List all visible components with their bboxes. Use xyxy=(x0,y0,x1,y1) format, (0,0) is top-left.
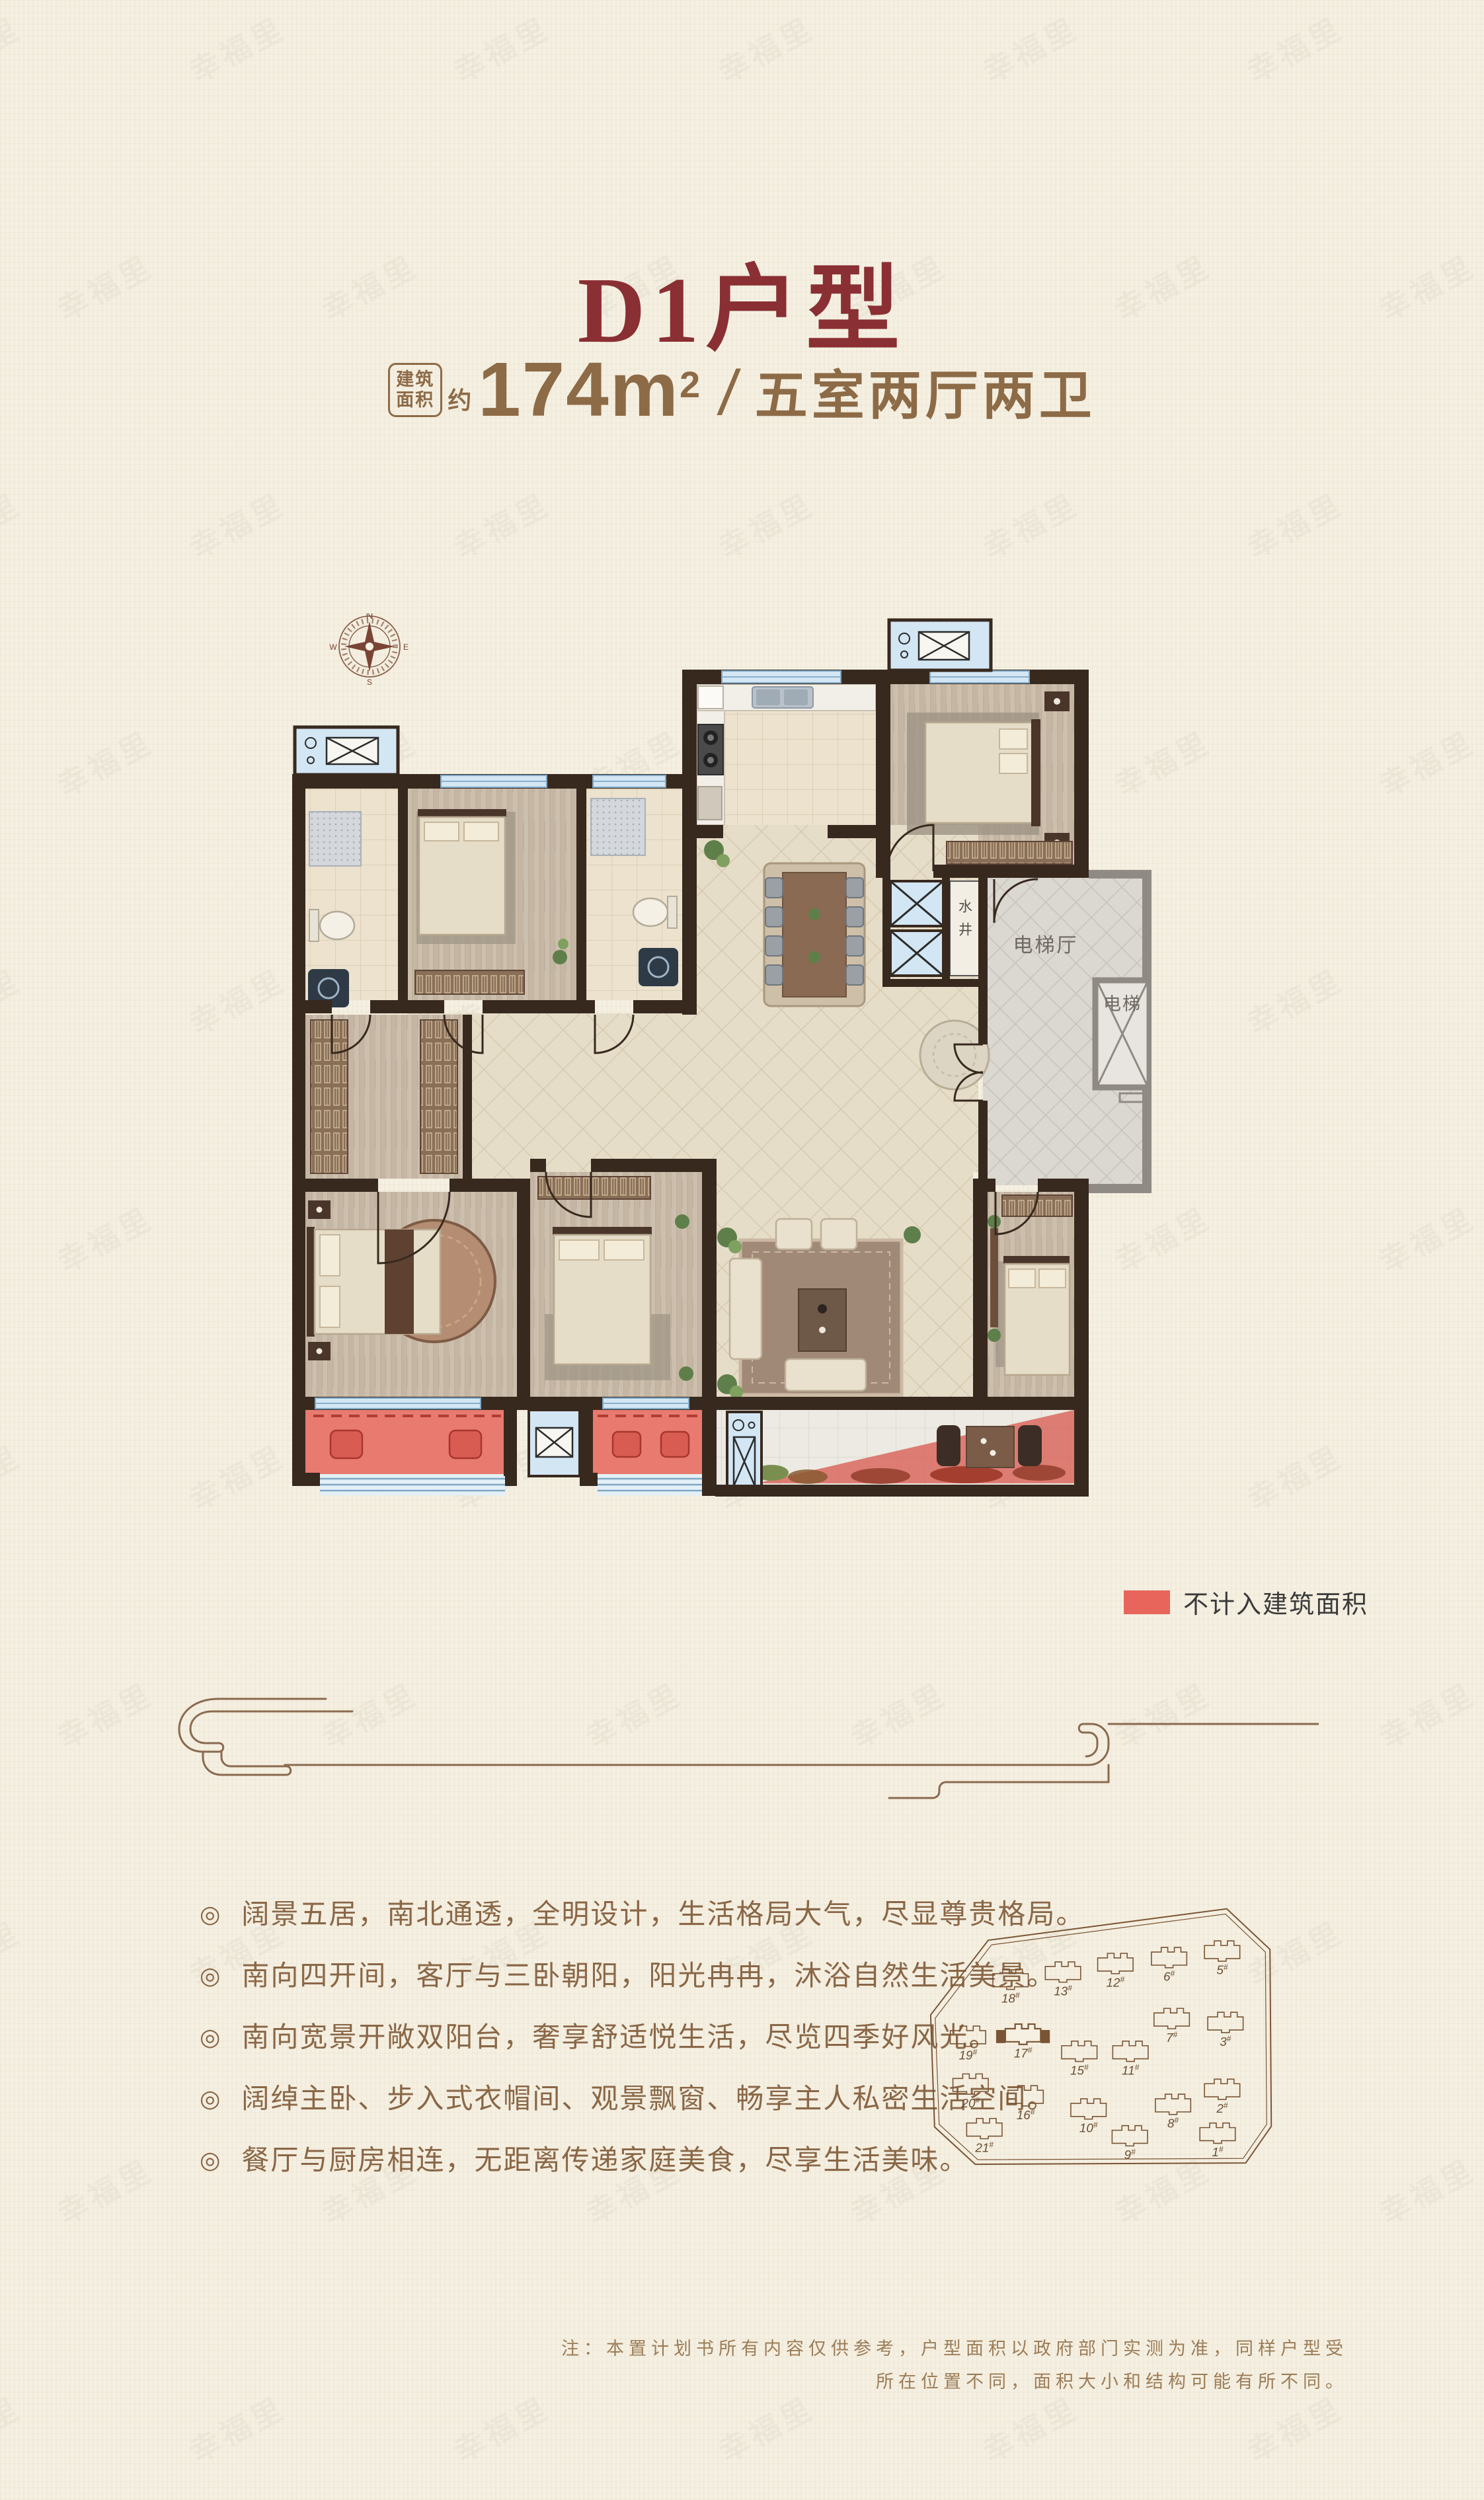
toilet-icon xyxy=(633,896,677,928)
watermark-text: 幸福里 xyxy=(181,481,293,568)
site-building-9: 9# xyxy=(1112,2126,1148,2162)
note-line-1: 注：本置计划书所有内容仅供参考，户型面积以政府部门实测为准，同样户型受 xyxy=(561,2332,1348,2365)
watermark-text: 幸福里 xyxy=(181,2384,293,2472)
watermark-text: 幸福里 xyxy=(710,481,822,568)
floor-plan: N E S W 电梯厅 电梯 xyxy=(286,613,1152,1506)
disclaimer-note: 注：本置计划书所有内容仅供参考，户型面积以政府部门实测为准，同样户型受 所在位置… xyxy=(561,2332,1348,2398)
site-building-label: 17# xyxy=(1014,2046,1033,2060)
watermark-text: 幸福里 xyxy=(1371,719,1483,806)
site-building-8: 8# xyxy=(1155,2094,1191,2130)
watermark-text: 幸福里 xyxy=(1239,481,1350,568)
site-building-3: 3# xyxy=(1208,2012,1243,2049)
toilet-icon xyxy=(309,910,354,941)
north-window-box-left xyxy=(295,727,398,775)
svg-text:电梯厅: 电梯厅 xyxy=(1013,935,1079,957)
watermark-text: 幸福里 xyxy=(181,1432,293,1520)
site-building-label: 13# xyxy=(1054,1984,1072,1998)
site-building-label: 8# xyxy=(1167,2116,1179,2130)
vanity-icon xyxy=(639,948,678,986)
area-sup: 2 xyxy=(680,364,700,405)
area-box-line2: 面积 xyxy=(396,390,434,410)
area-value: 174m2 xyxy=(478,357,700,422)
site-building-19: 19# xyxy=(951,2026,986,2062)
site-building-10: 10# xyxy=(1071,2099,1107,2135)
south-balcony xyxy=(717,1410,1074,1497)
site-building-6: 6# xyxy=(1152,1947,1187,1984)
site-building-label: 20# xyxy=(961,2095,980,2110)
site-building-label: 12# xyxy=(1107,1975,1125,1990)
site-building-18: 18# xyxy=(993,1969,1029,2006)
site-building-label: 5# xyxy=(1216,1963,1228,1977)
master-balcony xyxy=(305,1410,505,1495)
site-building-20: 20# xyxy=(953,2074,989,2110)
north-window-box-kitchen xyxy=(889,620,991,670)
layout-description: 五室两厅两卫 xyxy=(755,371,1096,421)
balcony-railing xyxy=(598,1474,705,1495)
watermark-text: 幸福里 xyxy=(1239,1432,1350,1520)
site-building-label: 11# xyxy=(1122,2062,1140,2077)
site-building-label: 18# xyxy=(1001,1990,1020,2005)
watermark-text: 幸福里 xyxy=(974,481,1086,568)
area-box: 建筑 面积 xyxy=(388,363,442,417)
site-building-21: 21# xyxy=(966,2119,1002,2155)
site-building-11: 11# xyxy=(1113,2041,1148,2078)
watermark-text: 幸福里 xyxy=(1239,5,1350,92)
approx-label: 约 xyxy=(448,381,471,416)
site-building-12: 12# xyxy=(1098,1953,1134,1990)
bullet-icon: ◎ xyxy=(200,2085,221,2113)
site-building-label: 15# xyxy=(1070,2062,1089,2077)
site-building-label: 21# xyxy=(974,2140,994,2154)
site-plan: 18#13#12#6#5#19#17#7#3#15#11#20#16#10#8#… xyxy=(920,1883,1287,2173)
compass-icon: N E S W xyxy=(329,613,409,687)
site-building-label: 7# xyxy=(1166,2030,1177,2045)
bullet-icon: ◎ xyxy=(200,2023,221,2051)
watermark-text: 幸福里 xyxy=(181,5,293,92)
site-building-13: 13# xyxy=(1045,1962,1081,1998)
watermark-text: 幸福里 xyxy=(446,2384,557,2472)
bedroom3-balcony xyxy=(593,1410,705,1495)
site-building-label: 19# xyxy=(959,2048,978,2062)
watermark-text: 幸福里 xyxy=(0,1908,28,1996)
site-building-label: 10# xyxy=(1079,2121,1098,2135)
balcony-railing xyxy=(320,1474,505,1495)
site-building-label: 2# xyxy=(1216,2101,1228,2115)
site-building-16: 16# xyxy=(1008,2086,1044,2122)
site-building-label: 3# xyxy=(1220,2034,1231,2049)
watermark-text: 幸福里 xyxy=(446,5,557,92)
watermark-text: 幸福里 xyxy=(0,1432,28,1520)
watermark-text: 幸福里 xyxy=(1371,1194,1483,1282)
watermark-text: 幸福里 xyxy=(49,2146,161,2234)
watermark-text: 幸福里 xyxy=(710,5,822,92)
watermark-text: 幸福里 xyxy=(0,2384,28,2472)
site-building-1: 1# xyxy=(1200,2123,1235,2160)
kitchen-sink-icon xyxy=(752,687,813,708)
floorplan-poster: 幸福里幸福里幸福里幸福里幸福里幸福里幸福里幸福里幸福里幸福里幸福里幸福里幸福里幸… xyxy=(0,0,1484,2500)
cloud-divider xyxy=(149,1687,1319,1826)
watermark-text: 幸福里 xyxy=(0,957,28,1044)
watermark-text: 幸福里 xyxy=(49,1670,161,1758)
watermark-text: 幸福里 xyxy=(446,481,557,568)
water-well-shaft: 水井 xyxy=(950,881,980,976)
site-building-7: 7# xyxy=(1154,2008,1190,2045)
legend-red-swatch xyxy=(1124,1590,1170,1614)
site-building-label: 9# xyxy=(1124,2147,1136,2162)
watermark-text: 幸福里 xyxy=(974,5,1086,92)
svg-text:水井: 水井 xyxy=(957,899,973,945)
watermark-text: 幸福里 xyxy=(181,957,293,1044)
svg-text:S: S xyxy=(367,678,372,687)
svg-text:E: E xyxy=(403,643,409,652)
watermark-text: 幸福里 xyxy=(0,5,28,92)
site-building-label: 16# xyxy=(1017,2107,1035,2122)
elevator-shaft: 电梯 xyxy=(1095,980,1150,1102)
watermark-text: 幸福里 xyxy=(1239,957,1350,1044)
site-building-5: 5# xyxy=(1204,1941,1240,1977)
watermark-text: 幸福里 xyxy=(49,1194,161,1282)
watermark-text: 幸福里 xyxy=(0,481,28,568)
site-building-17: 17# xyxy=(996,2024,1050,2060)
equipment-platform-south xyxy=(529,1410,580,1476)
watermark-text: 幸福里 xyxy=(49,719,161,806)
bullet-icon: ◎ xyxy=(200,2146,221,2174)
bullet-icon: ◎ xyxy=(200,1900,221,1928)
site-building-label: 1# xyxy=(1212,2144,1223,2159)
page-title: D1户型 xyxy=(0,233,1484,369)
laundry-platform xyxy=(727,1412,762,1493)
svg-text:N: N xyxy=(366,613,373,621)
site-building-label: 6# xyxy=(1163,1969,1175,1984)
bullet-icon: ◎ xyxy=(200,1962,221,1990)
site-building-15: 15# xyxy=(1062,2041,1097,2078)
svg-text:W: W xyxy=(329,643,337,652)
stove-icon xyxy=(698,724,723,775)
area-box-line1: 建筑 xyxy=(396,370,434,390)
site-building-2: 2# xyxy=(1204,2079,1240,2115)
watermark-text: 幸福里 xyxy=(1371,1670,1483,1758)
watermark-text: 幸福里 xyxy=(1371,2146,1483,2234)
living-room xyxy=(717,1219,921,1399)
separator: / xyxy=(716,365,742,422)
svg-text:电梯: 电梯 xyxy=(1103,994,1142,1014)
legend: 不计入建筑面积 xyxy=(1124,1584,1368,1620)
legend-label: 不计入建筑面积 xyxy=(1183,1584,1368,1620)
area-subtitle: 建筑 面积 约 174m2 / 五室两厅两卫 xyxy=(0,357,1484,422)
note-line-2: 所在位置不同，面积大小和结构可能有所不同。 xyxy=(561,2365,1348,2398)
